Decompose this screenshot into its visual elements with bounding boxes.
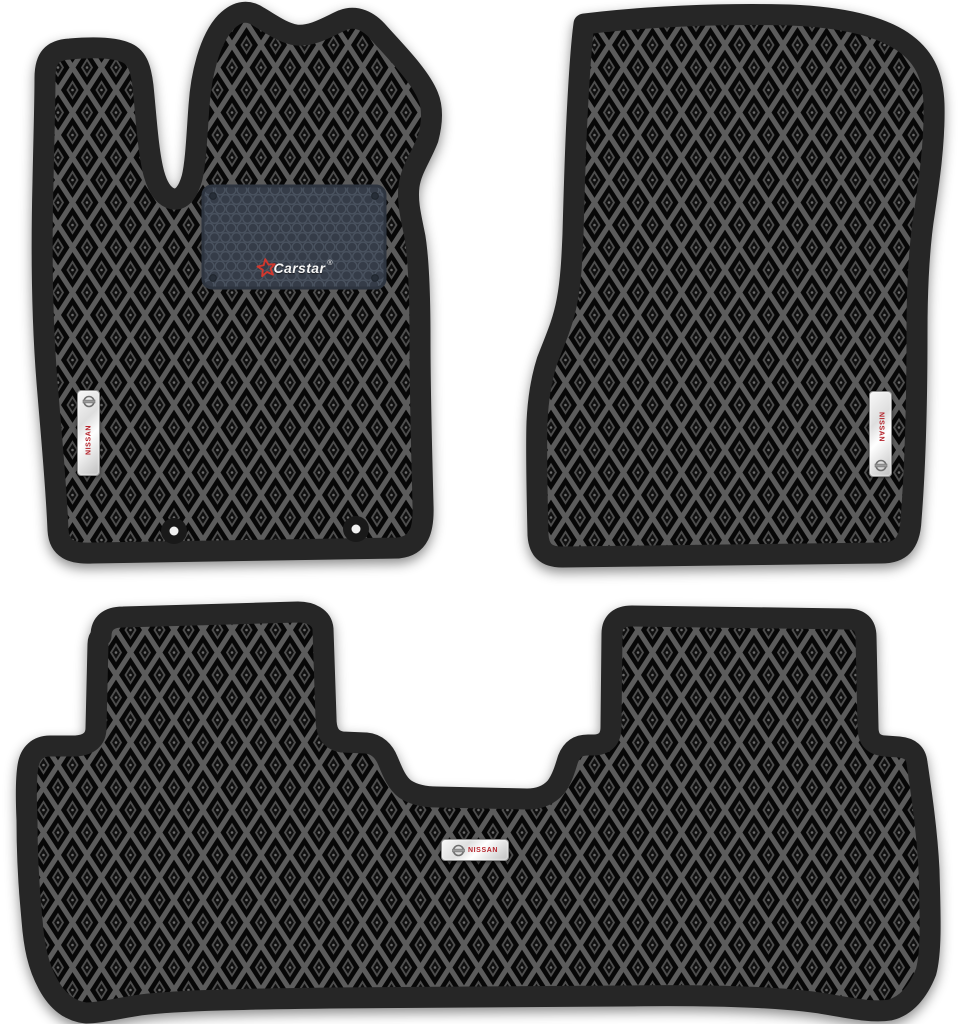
product-photo-canvas: Carstar ® NISSAN NISSAN NISSAN xyxy=(0,0,958,1024)
nissan-badge-text: NISSAN xyxy=(85,425,92,455)
rear-row-mat xyxy=(26,612,930,1013)
heel-pad xyxy=(203,186,385,288)
nissan-badge-text: NISSAN xyxy=(877,412,884,442)
nissan-emblem-icon xyxy=(452,844,465,857)
nissan-badge-text: NISSAN xyxy=(468,847,498,854)
nissan-badge-passenger: NISSAN xyxy=(869,391,892,477)
nissan-emblem-icon xyxy=(874,459,887,472)
nissan-emblem-icon xyxy=(82,395,95,408)
floor-mats-illustration xyxy=(0,0,958,1024)
nissan-badge-rear: NISSAN xyxy=(441,839,509,861)
nissan-badge-driver: NISSAN xyxy=(77,390,100,476)
